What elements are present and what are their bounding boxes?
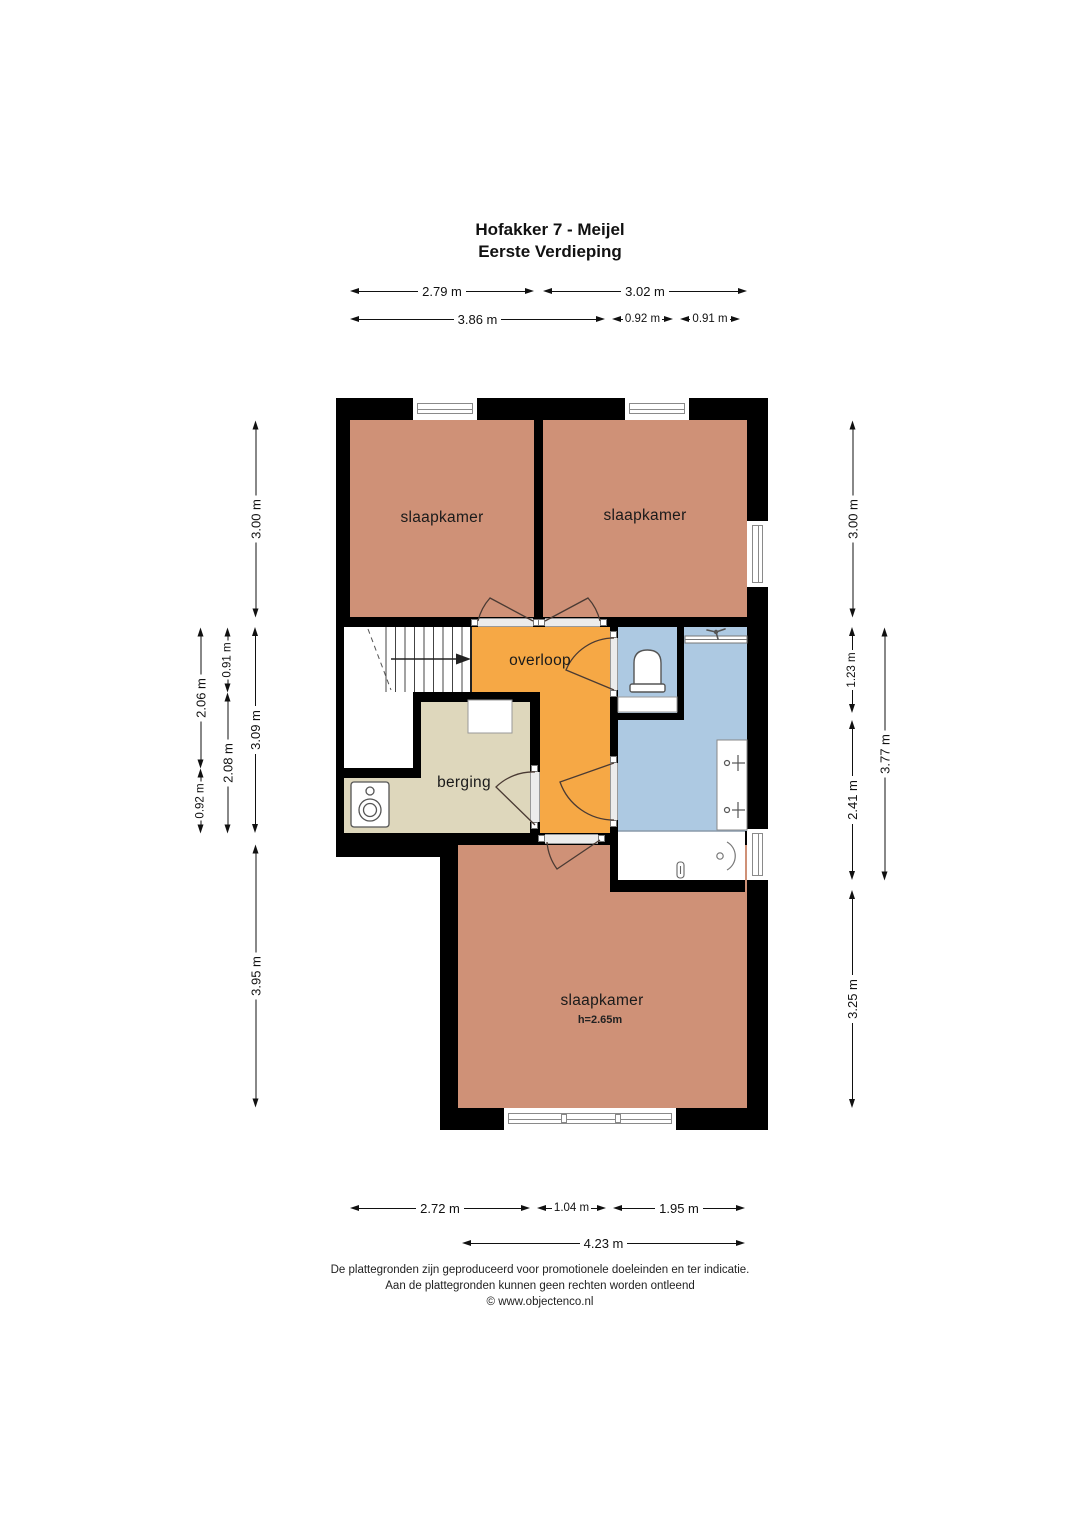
footer-disclaimer-1: De plattegronden zijn geproduceerd voor …: [0, 1264, 1080, 1276]
shower-area-floor: [618, 831, 745, 880]
footer-copyright: © www.objectenco.nl: [0, 1296, 1080, 1308]
room-label-bedroom-top-left: slaapkamer: [400, 509, 483, 527]
wc-compartment-wall-vertical: [677, 627, 684, 720]
dimension-bottom: 1.04 m: [537, 1199, 606, 1217]
room-label-bedroom-bottom: slaapkamer: [560, 992, 643, 1010]
dimension-top: 0.91 m: [680, 310, 740, 328]
door-jamb: [538, 619, 545, 626]
door-opening-bedroom-top-right: [545, 618, 600, 627]
dimension-top: 3.86 m: [350, 310, 605, 328]
dimension-top: 3.02 m: [543, 282, 747, 300]
door-jamb: [531, 765, 538, 772]
door-opening-bedroom-top-left: [478, 618, 533, 627]
dimension-top: 0.92 m: [612, 310, 673, 328]
door-jamb: [610, 690, 617, 697]
window: [413, 398, 477, 420]
dimension-left: 3.09 m: [246, 627, 264, 833]
shower-wall-bottom: [610, 880, 745, 892]
dimension-right: 3.25 m: [843, 890, 861, 1108]
dimension-left: 3.00 m: [247, 421, 265, 618]
dimension-bottom: 1.95 m: [613, 1199, 745, 1217]
door-opening-bedroom-bottom: [545, 834, 598, 844]
door-opening-bathroom: [610, 763, 618, 820]
dimension-right: 3.77 m: [876, 628, 894, 881]
room-storage-upper: [421, 702, 530, 833]
stair-void: [344, 627, 413, 768]
dimension-right: 1.23 m: [843, 627, 861, 713]
door-opening-wc: [610, 638, 618, 690]
door-jamb: [610, 820, 617, 827]
door-jamb: [598, 835, 605, 842]
wc-compartment-wall-horizontal: [618, 713, 677, 720]
door-jamb: [610, 756, 617, 763]
room-label-bedroom-top-right: slaapkamer: [603, 507, 686, 525]
dimension-left: 3.95 m: [247, 845, 265, 1108]
room-height-note: h=2.65m: [578, 1014, 622, 1026]
page-subtitle: Eerste Verdieping: [280, 242, 820, 262]
dimension-bottom: 4.23 m: [462, 1234, 745, 1252]
room-storage-lower: [344, 778, 421, 833]
door-jamb: [531, 822, 538, 829]
window: [747, 829, 768, 880]
shower-wall-left: [610, 833, 618, 880]
dimension-right: 3.00 m: [844, 421, 862, 618]
room-label-storage: berging: [437, 774, 491, 792]
window: [747, 521, 768, 587]
footer-disclaimer-2: Aan de plattegronden kunnen geen rechten…: [0, 1280, 1080, 1292]
dimension-left: 2.08 m: [219, 693, 237, 834]
door-jamb: [610, 631, 617, 638]
dimension-left: 0.91 m: [219, 628, 237, 693]
dimension-bottom: 2.72 m: [350, 1199, 530, 1217]
window: [625, 398, 689, 420]
room-label-landing: overloop: [509, 652, 571, 670]
dimension-right: 2.41 m: [843, 720, 861, 880]
dimension-left: 2.06 m: [192, 628, 210, 769]
door-opening-storage: [530, 772, 540, 822]
room-landing-corridor: [540, 692, 610, 833]
window: [504, 1108, 676, 1130]
dimension-left: 0.92 m: [192, 769, 210, 834]
page-title: Hofakker 7 - Meijel: [280, 220, 820, 240]
floorplan-canvas: Hofakker 7 - Meijel Eerste Verdieping: [0, 0, 1080, 1527]
door-jamb: [471, 619, 478, 626]
door-jamb: [538, 835, 545, 842]
door-jamb: [600, 619, 607, 626]
dimension-top: 2.79 m: [350, 282, 534, 300]
